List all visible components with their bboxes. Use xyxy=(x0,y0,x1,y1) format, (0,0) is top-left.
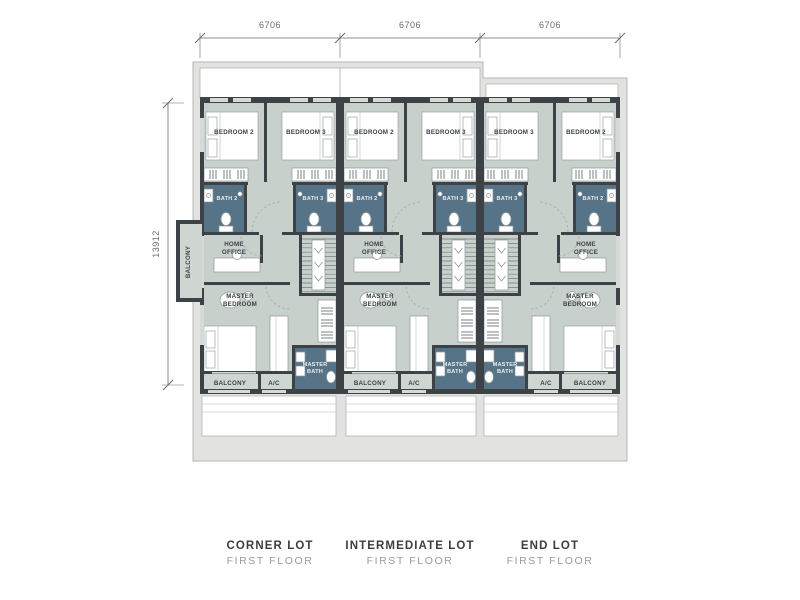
side-wall xyxy=(340,97,344,394)
room-label-balcony: BALCONY xyxy=(574,380,607,387)
sliding-door xyxy=(352,372,396,374)
window xyxy=(350,98,368,102)
pillow xyxy=(348,139,357,157)
lot-subtitle: FIRST FLOOR xyxy=(195,555,345,567)
window xyxy=(453,98,471,102)
roof-strip-bottom-1 xyxy=(202,396,336,436)
bath-wall xyxy=(573,185,576,235)
room-label-master-bedroom: MASTER xyxy=(566,293,594,300)
room-label-master-bath: MASTER xyxy=(443,362,468,368)
side-balcony-wall xyxy=(176,220,180,302)
pillow xyxy=(463,139,472,157)
room-label-master-bedroom: BEDROOM xyxy=(223,301,257,308)
pillow xyxy=(208,139,217,157)
lot-subtitle: FIRST FLOOR xyxy=(475,555,625,567)
room-label-ac: A/C xyxy=(268,380,280,387)
stair-wall xyxy=(299,235,302,296)
lot-title: INTERMEDIATE LOT xyxy=(335,540,485,552)
toilet xyxy=(467,371,476,383)
sliding-door xyxy=(564,372,608,374)
dimension-label-top: 6706 xyxy=(399,20,421,30)
room-label-master-bath: MASTER xyxy=(493,362,518,368)
room-label-bedroom2: BEDROOM 2 xyxy=(354,129,394,136)
window xyxy=(373,98,391,102)
bath-wall xyxy=(292,182,338,185)
room-label-home-office: HOME xyxy=(224,241,244,248)
desk xyxy=(354,258,400,272)
window xyxy=(313,98,331,102)
hall-wall xyxy=(422,232,433,235)
lot-title: END LOT xyxy=(475,540,625,552)
room-label-home-office: HOME xyxy=(576,241,596,248)
bath-wall xyxy=(244,185,247,235)
closet xyxy=(458,300,476,342)
room-label-home-office: OFFICE xyxy=(362,249,386,256)
stair-wall xyxy=(482,293,521,296)
toilet xyxy=(327,371,336,383)
office-wall xyxy=(400,235,403,263)
side-wall xyxy=(476,97,480,394)
roof-strip-top-2 xyxy=(340,68,480,98)
stair-runner xyxy=(452,240,465,290)
dimension-label-top: 6706 xyxy=(539,20,561,30)
pillow xyxy=(346,331,355,348)
room-label-bedroom2: BEDROOM 2 xyxy=(214,129,254,136)
room-label-bedroom3: BEDROOM 3 xyxy=(494,129,534,136)
stair-wall xyxy=(439,293,478,296)
ac-divider-wall xyxy=(398,374,401,390)
pillow xyxy=(346,351,355,368)
shower xyxy=(483,350,494,362)
stair-wall xyxy=(439,235,442,296)
shower-head xyxy=(238,192,242,196)
master-bedroom-wall xyxy=(342,282,430,285)
toilet-tank xyxy=(587,226,601,232)
pillow xyxy=(206,331,215,348)
dresser xyxy=(270,316,288,372)
desk xyxy=(560,258,606,272)
bath-wall xyxy=(202,232,247,235)
stair-wall xyxy=(518,235,521,296)
bath-wall xyxy=(342,232,387,235)
bedroom-divider-wall xyxy=(553,100,556,182)
window xyxy=(200,118,204,152)
bedroom-divider-wall xyxy=(404,100,407,182)
hall-wall xyxy=(527,232,538,235)
room-label-bath3: BATH 3 xyxy=(303,196,324,202)
window xyxy=(616,305,620,345)
toilet xyxy=(501,213,511,226)
room-label-bedroom3: BEDROOM 3 xyxy=(426,129,466,136)
sink xyxy=(607,189,616,202)
bath-wall xyxy=(482,232,527,235)
stair-runner xyxy=(312,240,325,290)
toilet xyxy=(589,213,599,226)
pillow xyxy=(605,351,614,368)
room-label-bath2: BATH 2 xyxy=(583,196,604,202)
bath-wall xyxy=(524,185,527,235)
toilet xyxy=(361,213,371,226)
toilet-tank xyxy=(447,226,461,232)
room-label-master-bedroom: BEDROOM xyxy=(363,301,397,308)
room-label-bath2: BATH 2 xyxy=(357,196,378,202)
room-label-master-bath: BATH xyxy=(447,369,463,375)
toilet xyxy=(449,213,459,226)
office-wall xyxy=(260,235,263,263)
roof-strip-bottom-2 xyxy=(346,396,476,436)
room-label-side-balcony: BALCONY xyxy=(185,245,192,278)
bath-wall xyxy=(572,182,618,185)
room-label-home-office: OFFICE xyxy=(574,249,598,256)
pillow xyxy=(605,331,614,348)
window xyxy=(430,98,448,102)
unit-corner-lot: BEDROOM 2BEDROOM 3BATH 2BATH 3HOMEOFFICE… xyxy=(200,97,340,394)
window xyxy=(569,98,587,102)
toilet-tank xyxy=(307,226,321,232)
ac-divider-wall xyxy=(559,374,562,390)
room-label-master-bath: MASTER xyxy=(303,362,328,368)
sink xyxy=(204,189,213,202)
window xyxy=(210,98,228,102)
window xyxy=(402,390,426,393)
closet xyxy=(318,300,336,342)
room-label-ac: A/C xyxy=(540,380,552,387)
window xyxy=(262,390,286,393)
room-label-balcony: BALCONY xyxy=(214,380,247,387)
pillow xyxy=(603,139,612,157)
toilet-tank xyxy=(359,226,373,232)
sink xyxy=(296,352,305,362)
hall-wall xyxy=(561,232,573,235)
sink xyxy=(344,189,353,202)
master-bath-wall xyxy=(525,345,528,394)
dresser xyxy=(410,316,428,372)
office-wall xyxy=(557,235,560,263)
bath-wall xyxy=(432,182,478,185)
dimension-label-side: 13912 xyxy=(151,230,161,258)
room-label-master-bedroom: MASTER xyxy=(226,293,254,300)
stair-runner xyxy=(495,240,508,290)
sink xyxy=(436,352,445,362)
window xyxy=(616,118,620,152)
toilet xyxy=(485,371,494,383)
shower-head xyxy=(518,192,522,196)
lot-title: CORNER LOT xyxy=(195,540,345,552)
unit-end-lot: BEDROOM 2BEDROOM 3BATH 2BATH 3HOMEOFFICE… xyxy=(480,97,620,394)
floor-plan-svg: BEDROOM 2BEDROOM 3BATH 2BATH 3HOMEOFFICE… xyxy=(0,0,800,600)
sliding-door xyxy=(212,372,256,374)
window xyxy=(489,98,507,102)
lot-caption-intermediate: INTERMEDIATE LOT FIRST FLOOR xyxy=(335,540,485,567)
master-bath-wall xyxy=(432,345,478,348)
bath-wall xyxy=(433,185,436,235)
unit-intermediate-lot: BEDROOM 2BEDROOM 3BATH 2BATH 3HOMEOFFICE… xyxy=(340,97,480,394)
bath-wall xyxy=(342,182,388,185)
master-bath-wall xyxy=(292,345,338,348)
window xyxy=(592,98,610,102)
bath-wall xyxy=(293,185,296,235)
floor-plan-canvas: BEDROOM 2BEDROOM 3BATH 2BATH 3HOMEOFFICE… xyxy=(0,0,800,600)
roof-strip-bottom-3 xyxy=(484,396,618,436)
window xyxy=(512,98,530,102)
master-bath-wall xyxy=(432,345,435,394)
window xyxy=(570,390,612,393)
window xyxy=(290,98,308,102)
master-bedroom-wall xyxy=(530,282,618,285)
lot-caption-corner: CORNER LOT FIRST FLOOR xyxy=(195,540,345,567)
room-label-balcony: BALCONY xyxy=(354,380,387,387)
toilet-tank xyxy=(219,226,233,232)
sink xyxy=(515,352,524,362)
room-label-master-bath: BATH xyxy=(497,369,513,375)
side-wall xyxy=(336,97,340,394)
bedroom-divider-wall xyxy=(264,100,267,182)
toilet-tank xyxy=(499,226,513,232)
room-label-bath3: BATH 3 xyxy=(497,196,518,202)
room-label-master-bedroom: MASTER xyxy=(366,293,394,300)
room-label-bedroom3: BEDROOM 3 xyxy=(286,129,326,136)
sink xyxy=(484,189,493,202)
master-bedroom-wall xyxy=(202,282,290,285)
master-bath-wall xyxy=(292,345,295,394)
shower xyxy=(466,350,477,362)
hall-wall xyxy=(282,232,293,235)
window xyxy=(616,236,620,288)
room-label-home-office: OFFICE xyxy=(222,249,246,256)
room-label-bath2: BATH 2 xyxy=(217,196,238,202)
room-label-ac: A/C xyxy=(408,380,420,387)
hall-wall xyxy=(387,232,399,235)
toilet xyxy=(309,213,319,226)
side-wall xyxy=(480,97,484,394)
master-bath-wall xyxy=(482,345,528,348)
dresser xyxy=(532,316,550,372)
hall-wall xyxy=(247,232,259,235)
desk xyxy=(214,258,260,272)
bath-wall xyxy=(482,182,528,185)
bath-wall xyxy=(293,232,338,235)
ac-divider-wall xyxy=(258,374,261,390)
room-label-master-bedroom: BEDROOM xyxy=(563,301,597,308)
pillow xyxy=(488,139,497,157)
bath-wall xyxy=(384,185,387,235)
pillow xyxy=(323,139,332,157)
sink xyxy=(327,189,336,202)
dimension-label-top: 6706 xyxy=(259,20,281,30)
toilet xyxy=(221,213,231,226)
window xyxy=(200,305,204,345)
bath-wall xyxy=(433,232,478,235)
window xyxy=(233,98,251,102)
shower xyxy=(326,350,337,362)
room-label-bath3: BATH 3 xyxy=(443,196,464,202)
roof-strip-top-1 xyxy=(200,68,340,98)
stair-wall xyxy=(299,293,338,296)
lot-caption-end: END LOT FIRST FLOOR xyxy=(475,540,625,567)
sink xyxy=(467,189,476,202)
window xyxy=(348,390,390,393)
room-label-bedroom2: BEDROOM 2 xyxy=(566,129,606,136)
closet xyxy=(484,300,502,342)
bath-wall xyxy=(202,182,248,185)
lot-subtitle: FIRST FLOOR xyxy=(335,555,485,567)
window xyxy=(208,390,250,393)
bath-wall xyxy=(573,232,618,235)
room-label-master-bath: BATH xyxy=(307,369,323,375)
shower-head xyxy=(378,192,382,196)
window xyxy=(534,390,558,393)
pillow xyxy=(206,351,215,368)
room-label-home-office: HOME xyxy=(364,241,384,248)
